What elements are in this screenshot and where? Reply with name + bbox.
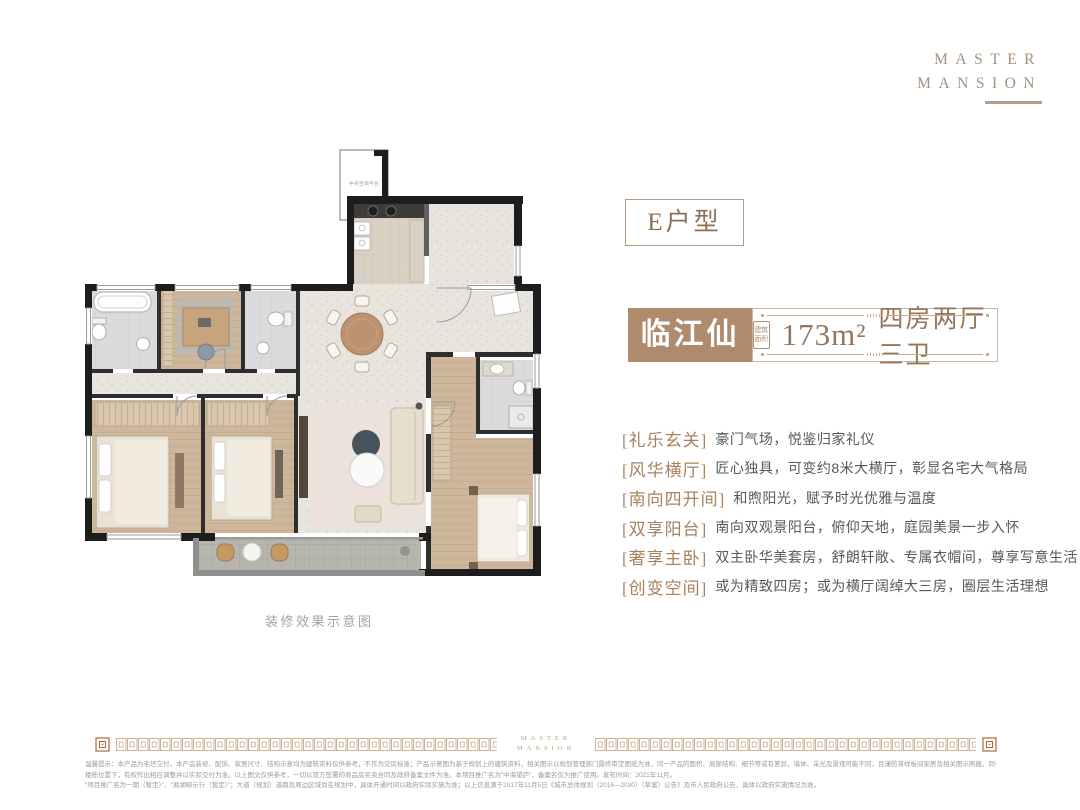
meander-band-right	[595, 737, 976, 752]
pillow	[517, 530, 527, 556]
wardrobe	[95, 402, 199, 426]
feature-desc: 南向双观景阳台，俯仰天地，庭园美景一步入怀	[715, 517, 1020, 537]
feature-row: [礼乐玄关] 豪门气场，悦鉴归家礼仪	[622, 424, 1072, 454]
sink	[257, 342, 269, 354]
bench	[275, 450, 283, 498]
area-stamp-line1: 建筑	[754, 326, 769, 335]
plant	[400, 546, 410, 556]
footer-logo-line1: MASTER	[517, 734, 575, 744]
band-stamp-right	[982, 737, 997, 752]
area-stamp-line2: 面积	[754, 335, 769, 344]
bench	[175, 453, 184, 508]
entry-cabinet	[491, 292, 520, 316]
sofa	[391, 408, 423, 504]
desk-chair	[198, 344, 214, 360]
nightstand	[469, 486, 478, 495]
wardrobe	[433, 406, 451, 480]
toilet-tank	[284, 312, 292, 326]
feature-desc: 匠心独具，可变约8米大横厅，彰显名宅大气格局	[715, 458, 1028, 478]
stove-burner	[368, 206, 378, 216]
feature-row: [双享阳台] 南向双观景阳台，俯仰天地，庭园美景一步入怀	[622, 513, 1072, 543]
toilet	[513, 381, 525, 395]
toilet	[92, 324, 106, 340]
headboard	[206, 436, 212, 520]
footer-band: MASTER MANSION	[95, 736, 997, 752]
feature-tag: [礼乐玄关]	[622, 426, 707, 451]
feature-row: [创变空间] 或为精致四房；或为横厅阔绰大三房，圈层生活理想	[622, 572, 1072, 602]
sink	[137, 338, 150, 351]
brand-line1: MASTER	[917, 52, 1042, 68]
disclaimer-line: 温馨提示：本产品为毛坯交付，本产品装修、配饰、家居尺寸、结构示意均为建筑资料仅供…	[85, 760, 997, 771]
pillow	[99, 480, 111, 512]
balcony-slider	[215, 537, 423, 540]
kitchen-sink	[354, 222, 370, 235]
toilet	[268, 312, 284, 326]
footer-logo-line2: MANSION	[517, 744, 575, 754]
bathtub	[94, 292, 151, 312]
feature-row: [风华横厅] 匠心独具，可变约8米大横厅，彰显名宅大气格局	[622, 454, 1072, 484]
layout-value: 四房两厅三卫	[879, 299, 997, 371]
duvet	[479, 498, 517, 558]
sink	[490, 364, 504, 374]
tv-console	[299, 416, 308, 498]
ottoman	[355, 506, 381, 522]
kitchen-cabinet	[410, 220, 424, 282]
area-stamp: 建筑 面积	[753, 321, 770, 349]
balcony-table	[243, 543, 261, 561]
feature-tag: [南向四开间]	[622, 485, 725, 510]
pillow	[214, 442, 225, 470]
floorplan-svg: 中央空调平台	[85, 138, 585, 620]
poster-page: { "brand": { "line1": "MASTER", "line2":…	[0, 0, 1080, 810]
unit-spec-box: 建筑 面积 173m² 四房两厅三卫	[752, 308, 998, 362]
disclaimer-line: “项目推广名为一期（暂定）”、“湘湖映示行（暂定）”；大道（规划）道路及周边区域…	[85, 781, 997, 792]
disclaimer-line: 楼栋位置下，有权作出相应调整并以实际交付为准。以上图文仅供参考，一切以双方签署的…	[85, 771, 997, 782]
floorplan: 中央空调平台	[85, 138, 585, 620]
feature-desc: 或为精致四房；或为横厅阔绰大三房，圈层生活理想	[715, 576, 1049, 596]
area-value: 173m²	[782, 317, 867, 353]
feature-row: [奢享主卧] 双主卧华美套房，舒朗轩敞、专属衣帽间，尊享写意生活	[622, 542, 1072, 572]
disclaimer: 温馨提示：本产品为毛坯交付，本产品装修、配饰、家居尺寸、结构示意均为建筑资料仅供…	[85, 760, 997, 792]
footer-logo: MASTER MANSION	[503, 734, 589, 754]
stove-burner	[386, 206, 396, 216]
feature-list: [礼乐玄关] 豪门气场，悦鉴归家礼仪 [风华横厅] 匠心独具，可变约8米大横厅，…	[622, 424, 1072, 601]
unit-name-box: 临江仙	[628, 308, 752, 362]
balcony-chair	[217, 544, 234, 561]
meander-band-left	[116, 737, 497, 752]
shower	[509, 406, 533, 428]
duvet	[115, 440, 167, 524]
pillow	[99, 444, 111, 476]
toilet-tank	[92, 318, 106, 324]
floorplan-caption: 装修效果示意图	[265, 611, 374, 630]
feature-desc: 豪门气场，悦鉴归家礼仪	[715, 429, 875, 449]
toilet-tank	[526, 381, 532, 395]
pillow	[214, 474, 225, 502]
feature-tag: [奢享主卧]	[622, 544, 707, 569]
brand-line2: MANSION	[917, 76, 1042, 92]
feature-desc: 双主卧华美套房，舒朗轩敞、专属衣帽间，尊享写意生活	[715, 547, 1078, 567]
spec-rule-bottom	[761, 353, 989, 356]
feature-row: [南向四开间] 和煦阳光，赋予时光优雅与温度	[622, 483, 1072, 513]
wardrobe	[207, 402, 269, 426]
brand-logo: MASTER MANSION	[917, 52, 1042, 104]
band-stamp-left	[95, 737, 110, 752]
hallway-floor	[88, 373, 296, 394]
coffee-table-white	[350, 453, 384, 487]
balcony-chair	[271, 544, 288, 561]
feature-tag: [风华横厅]	[622, 456, 707, 481]
unit-type-box: E户型	[625, 199, 744, 246]
powder-floor	[245, 291, 296, 369]
feature-desc: 和煦阳光，赋予时光优雅与温度	[733, 488, 936, 508]
feature-tag: [创变空间]	[622, 574, 707, 599]
floor-lamp	[416, 403, 423, 410]
pillow	[517, 500, 527, 526]
entry-floor	[429, 204, 514, 284]
spec-rule-top	[761, 314, 989, 317]
duvet	[227, 440, 270, 516]
kitchen-sink	[354, 237, 370, 250]
feature-tag: [双享阳台]	[622, 515, 707, 540]
bookshelf	[163, 290, 173, 366]
brand-underline	[985, 101, 1042, 104]
platform-label: 中央空调平台	[349, 180, 379, 187]
laptop	[198, 318, 211, 327]
